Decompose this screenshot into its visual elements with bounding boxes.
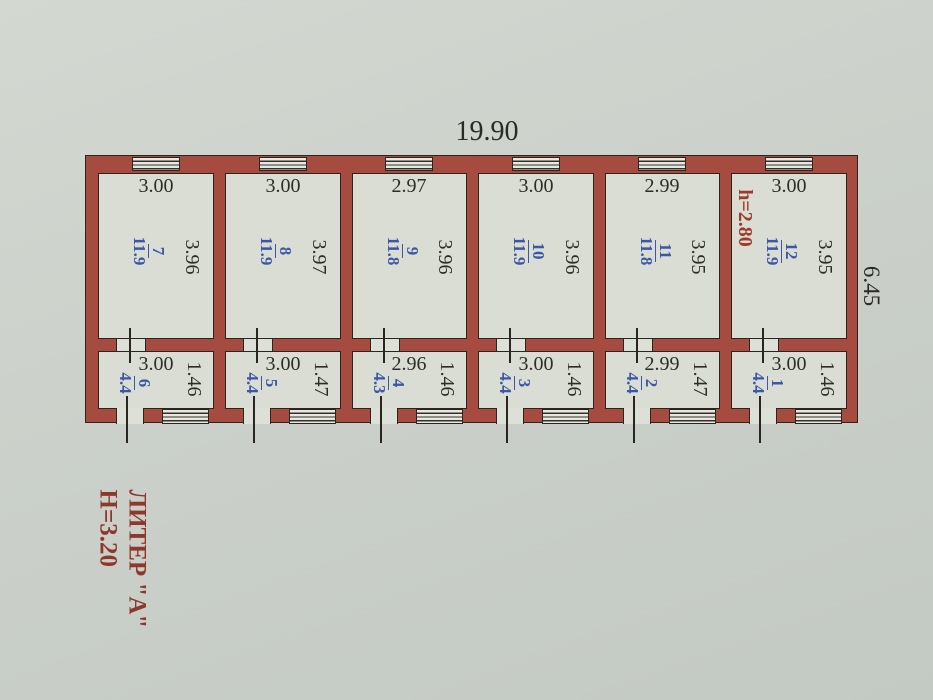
overall-width-dimension: 19.90 <box>397 116 577 148</box>
room-area: 11.9 <box>764 237 782 266</box>
liter-label: ЛИТЕР "А" <box>122 490 151 665</box>
room-1-depth-dim: 1.46 <box>816 349 838 409</box>
entrance-door-opening <box>749 408 777 424</box>
room-area: 4.4 <box>750 372 768 393</box>
window-icon <box>795 409 842 424</box>
building-height-note: Н=3.20 <box>93 490 122 665</box>
liter-annotation: ЛИТЕР "А" Н=3.20 <box>93 490 151 665</box>
room-12-depth-dim: 3.95 <box>814 217 836 297</box>
unit-6: 3.00 3.95 12 11.9 3.00 1.46 1 4.4 h=2.80 <box>86 156 857 422</box>
room-12-label: 12 11.9 <box>759 224 805 278</box>
room-number: 12 <box>782 240 801 263</box>
window-icon <box>765 157 813 171</box>
room-1-label: 1 4.4 <box>747 358 789 408</box>
door-opening <box>749 339 779 351</box>
room-number: 1 <box>768 376 787 391</box>
floor-plan: 19.90 6.45 3.00 3.96 7 11.9 3.00 1.46 6 … <box>0 0 933 700</box>
room-12-width-dim: 3.00 <box>744 175 834 198</box>
overall-depth-dimension: 6.45 <box>860 251 884 321</box>
ceiling-height-note: h=2.80 <box>734 176 756 260</box>
building-outline: 3.00 3.96 7 11.9 3.00 1.46 6 4.4 3.00 <box>85 155 858 423</box>
